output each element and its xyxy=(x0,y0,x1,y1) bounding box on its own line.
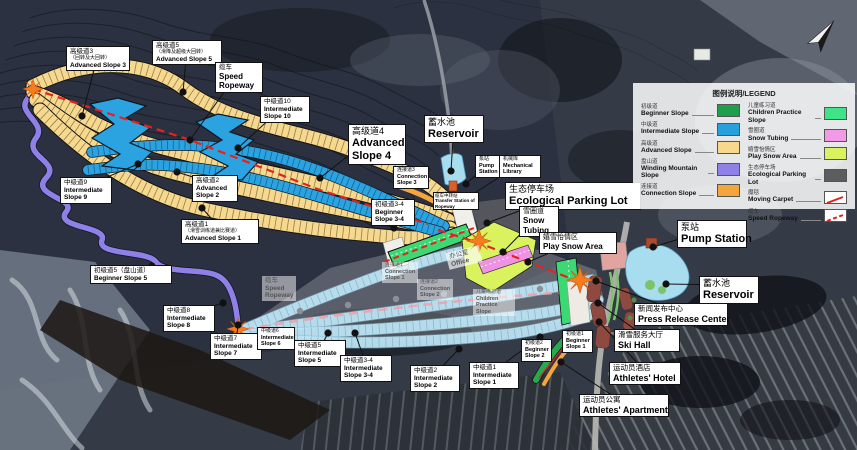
label-en-text: Athletes' Hotel xyxy=(613,373,677,384)
label-en-text: Beginner Slope 1 xyxy=(566,338,589,351)
legend-item-right-1: 雪圈道Snow Tubing xyxy=(748,128,847,143)
label-en-text: Play Snow Area xyxy=(543,242,613,251)
label-zh-text: 滑雪服务大厅 xyxy=(618,331,676,340)
label-en-text: Pump Station xyxy=(681,233,743,246)
legend-swatch-color xyxy=(717,123,740,136)
legend-swatch-color xyxy=(717,184,740,197)
label-zh-text: 生态停车场 xyxy=(509,184,637,195)
legend-en: Intermediate Slope xyxy=(641,128,699,135)
legend-item-left-0: 初级道Beginner Slope xyxy=(641,103,740,118)
label-en-text: Pump Station xyxy=(479,163,497,176)
legend-leader-line xyxy=(699,186,714,196)
label-zh-text: 缆车 xyxy=(265,277,293,285)
map-label-beg34: 初级道3-4Beginner Slope 3-4 xyxy=(371,199,415,226)
legend-item-left-1: 中级道Intermediate Slope xyxy=(641,122,740,137)
label-en-text: Intermediate Slope 3-4 xyxy=(344,365,388,380)
map-label-conn3: 连接道3Connection Slope 3 xyxy=(393,166,429,189)
label-en-text: Press Release Center xyxy=(638,314,724,325)
map-label-press: 新闻发布中心Press Release Center xyxy=(634,303,728,326)
legend-en: Speed Ropeway xyxy=(748,215,798,222)
legend-en: Moving Carpet xyxy=(748,196,793,203)
label-en-text: Intermediate Slope 6 xyxy=(261,335,291,348)
map-label-int9: 中级道9Intermediate Slope 9 xyxy=(60,177,112,204)
map-label-conn1: 连接道1Connection Slope 1 xyxy=(382,262,418,283)
legend-leader-line xyxy=(695,143,714,153)
label-en-text: Athletes' Apartment xyxy=(583,405,665,416)
legend-item-left-4: 连接道Connection Slope xyxy=(641,183,740,198)
legend-item-left-3: 盘山道Winding Mountain Slope xyxy=(641,159,740,180)
map-label-conn2: 连接道2Connection Slope 2 xyxy=(417,279,453,300)
map-label-adv5: 高级道5（滑降及超级大回转）Advanced Slope 5 xyxy=(152,40,222,65)
label-en-text: Reservoir xyxy=(703,289,755,302)
map-label-int34: 中级道3-4Intermediate Slope 3-4 xyxy=(340,355,392,382)
legend-title: 图例说明/LEGEND xyxy=(641,88,847,99)
label-zh-text: 中级道7 xyxy=(214,335,258,343)
map-label-office: 办公室Office xyxy=(445,245,482,270)
label-zh-text: 新闻发布中心 xyxy=(638,305,724,314)
label-zh-text: 高级道4 xyxy=(352,126,402,137)
map-label-pump1: 泵站Pump Station xyxy=(475,155,501,178)
label-en-text: Advanced Slope 5 xyxy=(156,56,218,64)
map-label-int7: 中级道7Intermediate Slope 7 xyxy=(210,333,262,360)
label-zh-text: 雪圈道 xyxy=(523,208,555,216)
label-zh-text: 中级道8 xyxy=(167,307,211,315)
legend-en: Snow Tubing xyxy=(748,135,788,142)
label-en-text: Speed Ropeway xyxy=(265,285,293,300)
label-en-text: Connection Slope 1 xyxy=(385,269,415,282)
legend-en: Winding Mountain Slope xyxy=(641,165,705,180)
map-label-adv1: 高级道1（滑雪训练道兼比赛道）Advanced Slope 1 xyxy=(181,219,259,244)
label-en-text: Advanced Slope 2 xyxy=(196,185,234,200)
label-en-text: Ski Hall xyxy=(618,340,676,351)
label-zh-text: 中级道1 xyxy=(473,364,515,372)
map-label-play: 嬉雪怡情区Play Snow Area xyxy=(539,232,617,254)
legend-leader-line xyxy=(801,211,821,221)
map-label-int8: 中级道8Intermediate Slope 8 xyxy=(163,305,215,332)
legend-swatch-solid-line xyxy=(824,191,847,204)
map-label-apt: 运动员公寓Athletes' Apartment xyxy=(579,394,669,417)
legend-panel: 图例说明/LEGEND 初级道Beginner Slope中级道Intermed… xyxy=(633,83,855,209)
label-zh-text: 运动员酒店 xyxy=(613,364,677,373)
label-en-text: Connection Slope 2 xyxy=(420,286,450,299)
legend-en: Play Snow Area xyxy=(748,153,797,160)
label-en-text: Children Practice Slope xyxy=(476,296,512,315)
map-label-int6: 中级道6Intermediate Slope 6 xyxy=(257,327,295,350)
label-zh-text: 初级道5（盘山道） xyxy=(94,267,168,275)
map-label-beg5: 初级道5（盘山道）Beginner Slope 5 xyxy=(90,265,172,284)
legend-swatch-color xyxy=(717,141,740,154)
legend-leader-line xyxy=(800,149,821,159)
label-en-text: Advanced Slope 1 xyxy=(185,235,255,243)
map-label-adv3: 高级道3（回转及大回转）Advanced Slope 3 xyxy=(66,46,130,71)
legend-item-left-2: 高级道Advanced Slope xyxy=(641,140,740,155)
legend-left-column: 初级道Beginner Slope中级道Intermediate Slope高级… xyxy=(641,103,740,227)
legend-en: Children Practice Slope xyxy=(748,109,812,124)
label-zh-text: 中级道10 xyxy=(264,98,306,106)
map-label-transfer: 缆车中转站Transfer Station of Ropeway xyxy=(433,192,479,210)
legend-en: Advanced Slope xyxy=(641,147,692,154)
legend-swatch-color xyxy=(717,104,740,117)
map-label-hotel: 运动员酒店Athletes' Hotel xyxy=(609,362,681,385)
label-zh-text: 嬉雪怡情区 xyxy=(543,234,613,242)
label-en-text: Intermediate Slope 1 xyxy=(473,372,515,387)
label-zh-text: 高级道2 xyxy=(196,177,234,185)
legend-swatch-color xyxy=(824,169,847,182)
map-label-int10: 中级道10Intermediate Slope 10 xyxy=(260,96,310,123)
legend-leader-line xyxy=(815,170,821,180)
legend-en: Connection Slope xyxy=(641,190,696,197)
map-label-adv2: 高级道2Advanced Slope 2 xyxy=(192,175,238,202)
label-en-text: Reservoir xyxy=(428,128,480,141)
legend-item-right-5: 缆车Speed Ropeway xyxy=(748,208,847,223)
label-en-text: Connection Slope 3 xyxy=(397,174,425,187)
label-zh-text: 运动员公寓 xyxy=(583,396,665,405)
map-label-mech: 机械库Mechanical Library xyxy=(499,155,541,178)
label-en-text: Advanced Slope 4 xyxy=(352,137,402,163)
label-en-text: Beginner Slope 5 xyxy=(94,275,168,283)
legend-leader-line xyxy=(692,106,714,116)
label-zh-text: 蓄水池 xyxy=(428,117,480,128)
label-en-text: Mechanical Library xyxy=(503,163,537,176)
label-zh-text: 缆车 xyxy=(219,64,259,72)
label-en-text: Intermediate Slope 5 xyxy=(298,350,342,365)
legend-swatch-color xyxy=(824,107,847,120)
legend-leader-line xyxy=(796,192,821,202)
label-zh-text: 蓄水池 xyxy=(703,278,755,289)
map-label-children: 儿童练习道Children Practice Slope xyxy=(473,289,515,316)
map-label-res1: 蓄水池Reservoir xyxy=(424,115,484,143)
label-zh-text: 中级道5 xyxy=(298,342,342,350)
legend-item-right-4: 魔毯Moving Carpet xyxy=(748,190,847,205)
legend-swatch-color xyxy=(824,129,847,142)
label-zh-text: 初级道3-4 xyxy=(375,201,411,209)
legend-swatch-color xyxy=(824,147,847,160)
label-en-text: Speed Ropeway xyxy=(219,72,259,91)
label-en-text: Beginner Slope 2 xyxy=(525,347,548,360)
legend-leader-line xyxy=(791,130,821,140)
label-zh-text: 中级道9 xyxy=(64,179,108,187)
map-label-int2: 中级道2Intermediate Slope 2 xyxy=(410,365,460,392)
legend-item-right-3: 生态停车场Ecological Parking Lot xyxy=(748,165,847,186)
legend-item-right-0: 儿童练习道Children Practice Slope xyxy=(748,103,847,124)
legend-swatch-dashed-line xyxy=(824,209,847,222)
legend-en: Ecological Parking Lot xyxy=(748,171,812,186)
legend-leader-line xyxy=(702,124,714,134)
map-label-int1: 中级道1Intermediate Slope 1 xyxy=(469,362,519,389)
map-label-adv4: 高级道4Advanced Slope 4 xyxy=(348,124,406,165)
map-label-beg1: 初级道1Beginner Slope 1 xyxy=(562,330,593,353)
map-label-res2: 蓄水池Reservoir xyxy=(699,276,759,304)
label-en-text: Transfer Station of Ropeway xyxy=(435,198,477,209)
map-label-int5: 中级道5Intermediate Slope 5 xyxy=(294,340,346,367)
label-en-text: Advanced Slope 3 xyxy=(70,62,126,70)
label-zh-text: 中级道2 xyxy=(414,367,456,375)
legend-en: Beginner Slope xyxy=(641,110,689,117)
map-label-rope1: 缆车Speed Ropeway xyxy=(215,62,263,93)
label-en-text: Intermediate Slope 7 xyxy=(214,343,258,358)
map-label-beg2: 初级道2Beginner Slope 2 xyxy=(521,339,552,362)
label-en-text: Intermediate Slope 2 xyxy=(414,375,456,390)
label-en-text: Intermediate Slope 8 xyxy=(167,315,211,330)
legend-swatch-color xyxy=(717,163,740,176)
legend-leader-line xyxy=(708,164,714,174)
legend-leader-line xyxy=(815,109,821,119)
label-en-text: Intermediate Slope 10 xyxy=(264,106,306,121)
legend-right-column: 儿童练习道Children Practice Slope雪圈道Snow Tubi… xyxy=(748,103,847,227)
map-label-skihall: 滑雪服务大厅Ski Hall xyxy=(614,329,680,352)
map-label-rope2: 缆车Speed Ropeway xyxy=(262,276,296,301)
ski-resort-map: 高级道3（回转及大回转）Advanced Slope 3高级道5（滑降及超级大回… xyxy=(0,0,857,450)
label-en-text: Intermediate Slope 9 xyxy=(64,187,108,202)
legend-item-right-2: 嬉雪怡情区Play Snow Area xyxy=(748,146,847,161)
label-zh-text: 中级道3-4 xyxy=(344,357,388,365)
label-en-text: Beginner Slope 3-4 xyxy=(375,209,411,224)
